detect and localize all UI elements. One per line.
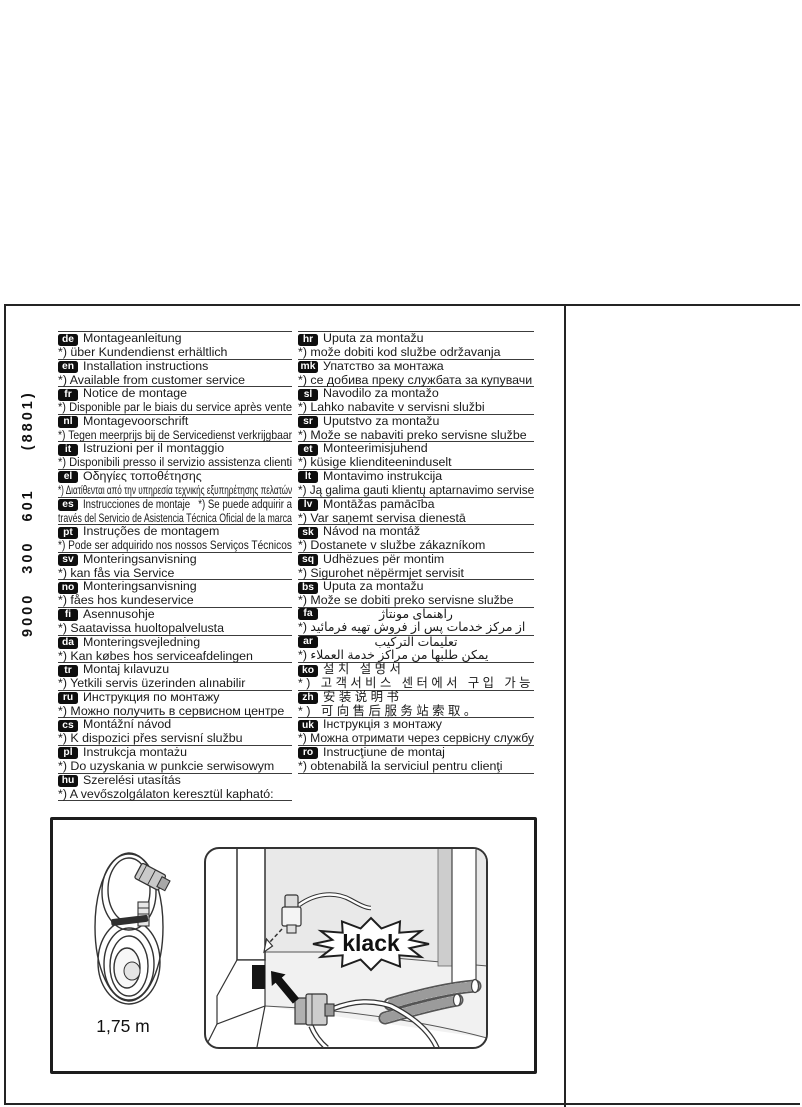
language-row-en: enInstallation instructions*) Available … <box>58 359 292 387</box>
language-title: راهنمای مونتاژ <box>298 608 534 621</box>
language-row-bs: bsUputa za montažu*) Može se dobiti prek… <box>298 579 534 607</box>
language-row-uk: ukІнструкція з монтажу*) Можна отримати … <box>298 717 534 745</box>
language-title: Navodilo za montažo <box>323 387 439 400</box>
language-row-lt: ltMontavimo instrukcija*) Ją galima gaut… <box>298 469 534 497</box>
language-note: *) Do uzyskania w punkcie serwisowym <box>58 760 274 773</box>
language-title: Інструкція з монтажу <box>323 718 442 731</box>
language-note: *) Можно получить в сервисном центре <box>58 705 284 718</box>
language-title: Инструкция по монтажу <box>83 691 220 704</box>
language-row-pl: plInstrukcja montażu*) Do uzyskania w pu… <box>58 745 292 773</box>
language-note: *) Yetkili servis üzerinden alınabilir <box>58 677 245 690</box>
language-code-badge-sl: sl <box>298 389 318 401</box>
language-title: تعليمات التركيب <box>298 636 534 649</box>
language-code-badge-sv: sv <box>58 554 78 566</box>
language-title: Uputa za montažu <box>323 332 424 345</box>
language-title: Instrucţiune de montaj <box>323 746 445 759</box>
power-socket <box>252 965 265 989</box>
klack-label: klack <box>342 930 400 956</box>
language-code-badge-sr: sr <box>298 416 318 428</box>
language-note: *) Disponibili presso il servizio assist… <box>58 456 292 469</box>
language-row-nl: nlMontagevoorschrift*) Tegen meerprijs b… <box>58 414 292 442</box>
cable-length-label: 1,75 m <box>96 1016 150 1036</box>
language-code-badge-mk: mk <box>298 361 318 373</box>
language-note: *) Sigurohet nëpërmjet servisit <box>298 567 464 580</box>
language-code-badge-ru: ru <box>58 692 78 704</box>
language-row-et: etMonteerimisjuhend*) küsige klienditeen… <box>298 441 534 469</box>
language-row-mk: mkУпатство за монтажа*) се добива преку … <box>298 359 534 387</box>
language-note: *) يمكن طلبها من مراكز خدمة العملاء <box>298 649 488 662</box>
language-code-badge-hr: hr <box>298 334 318 346</box>
language-note: *) kan fås via Service <box>58 567 174 580</box>
language-row-fa: faراهنمای مونتاژ*) از مرکز خدمات پس از ف… <box>298 607 534 635</box>
language-row-el: elΟδηγίες τοποθέτησης*) Διατίθενται από … <box>58 469 292 497</box>
language-row-sk: skNávod na montáž*) Dostanete v službe z… <box>298 524 534 552</box>
language-code-badge-bs: bs <box>298 582 318 594</box>
document-number-vertical: 9000 300 601 (8801) <box>20 335 37 637</box>
language-code-badge-es: es <box>58 499 78 511</box>
language-code-badge-da: da <box>58 637 78 649</box>
language-code-badge-no: no <box>58 582 78 594</box>
language-list-left: deMontageanleitung*) über Kundendienst e… <box>58 331 292 801</box>
language-code-badge-nl: nl <box>58 416 78 428</box>
right-frame-strip <box>452 848 476 983</box>
language-row-sv: svMonteringsanvisning*) kan fås via Serv… <box>58 552 292 580</box>
language-row-it: itIstruzioni per il montaggio*) Disponib… <box>58 441 292 469</box>
language-title: Monteringsanvisning <box>83 580 197 593</box>
language-note: *) obtenabilă la serviciul pentru clienţ… <box>298 760 503 773</box>
language-note: *) Ją galima gauti klientų aptarnavimo s… <box>298 484 534 497</box>
language-code-badge-ro: ro <box>298 747 318 759</box>
right-frame-strip-dark <box>438 848 452 966</box>
language-note: *) Može se nabaviti preko servisne služb… <box>298 429 527 442</box>
language-title: Montageanleitung <box>83 332 182 345</box>
language-row-hu: huSzerelési utasítás*) A vevőszolgálaton… <box>58 773 292 801</box>
language-row-hr: hrUputa za montažu*) može dobiti kod slu… <box>298 331 534 359</box>
power-cable-coil-icon <box>95 853 171 1004</box>
language-note: *) Kan købes hos serviceafdelingen <box>58 650 253 663</box>
language-note: *) K dispozici přes servisní službu <box>58 732 243 745</box>
installation-figure: 1,75 m <box>50 817 537 1074</box>
language-title: Instrucciones de montaje *) Se puede adq… <box>83 498 292 511</box>
appliance-rear-panel: klack <box>205 846 487 1048</box>
language-title: Montážní návod <box>83 718 171 731</box>
page-divider-line <box>564 304 566 1107</box>
language-row-ko: ko설치 설명서*) 고객서비스 센터에서 구입 가능 <box>298 662 534 690</box>
language-code-badge-pt: pt <box>58 527 78 539</box>
language-note: *) može dobiti kod službe održavanja <box>298 346 501 359</box>
language-note: *) Dostanete v službe zákazníkom <box>298 539 485 552</box>
language-note: *) се добива преку службата за купувачи <box>298 374 532 387</box>
language-code-badge-lt: lt <box>298 471 318 483</box>
language-note: *) 可向售后服务站索取。 <box>298 705 480 718</box>
language-note: *) Можна отримати через сервісну службу <box>298 732 534 745</box>
language-code-badge-uk: uk <box>298 720 318 732</box>
language-title: Instrukcja montażu <box>83 746 187 759</box>
language-code-badge-sq: sq <box>298 554 318 566</box>
language-list-right: hrUputa za montažu*) može dobiti kod slu… <box>298 331 534 774</box>
language-code-badge-sk: sk <box>298 527 318 539</box>
language-row-no: noMonteringsanvisning*) fåes hos kundese… <box>58 579 292 607</box>
language-row-tr: trMontaj kılavuzu*) Yetkili servis üzeri… <box>58 662 292 690</box>
language-title: Montāžas pamācība <box>323 498 435 511</box>
language-note: *) Saatavissa huoltopalvelusta <box>58 622 224 635</box>
language-note: *) 고객서비스 센터에서 구입 가능 <box>298 677 534 690</box>
language-row-ar: arتعليمات التركيب*) يمكن طلبها من مراكز … <box>298 635 534 663</box>
language-code-badge-it: it <box>58 444 78 456</box>
language-title: Installation instructions <box>83 360 208 373</box>
language-row-ro: roInstrucţiune de montaj*) obtenabilă la… <box>298 745 534 773</box>
language-row-lv: lvMontāžas pamācība*) Var saņemt servisa… <box>298 497 534 525</box>
language-row-ru: ruИнструкция по монтажу*) Можно получить… <box>58 690 292 718</box>
installation-figure-drawing: 1,75 m <box>53 820 534 1071</box>
language-row-zh: zh安装说明书*) 可向售后服务站索取。 <box>298 690 534 718</box>
language-title: Istruzioni per il montaggio <box>83 442 224 455</box>
language-title: Montavimo instrukcija <box>323 470 442 483</box>
language-code-badge-pl: pl <box>58 747 78 759</box>
language-note: *) Available from customer service <box>58 374 245 387</box>
language-note: *) Disponible par le biais du service ap… <box>58 401 292 414</box>
language-code-badge-cs: cs <box>58 720 78 732</box>
language-note: *) Lahko nabavite v servisni službi <box>298 401 485 414</box>
language-note: *) Διατίθενται από την υπηρεσία τεχνικής… <box>58 484 292 497</box>
language-code-badge-fr: fr <box>58 389 78 401</box>
language-code-badge-de: de <box>58 334 78 346</box>
language-title: Instruções de montagem <box>83 525 219 538</box>
language-title: Montagevoorschrift <box>83 415 188 428</box>
language-code-badge-ko: ko <box>298 665 318 677</box>
language-note: *) A vevőszolgálaton keresztül kapható: <box>58 788 274 801</box>
language-code-badge-en: en <box>58 361 78 373</box>
language-note: *) از مرکز خدمات پس از فروش تهیه فرمائید <box>298 621 525 634</box>
language-row-sq: sqUdhëzues për montim*) Sigurohet nëpërm… <box>298 552 534 580</box>
language-code-badge-zh: zh <box>298 692 318 704</box>
language-note: *) über Kundendienst erhältlich <box>58 346 227 359</box>
language-note: *) Može se dobiti preko servisne službe <box>298 594 514 607</box>
language-title: Οδηγίες τοποθέτησης <box>83 470 202 483</box>
language-title: Упатство за монтажа <box>323 360 444 373</box>
language-title: Udhëzues për montim <box>323 553 444 566</box>
language-code-badge-lv: lv <box>298 499 318 511</box>
language-title: Notice de montage <box>83 387 187 400</box>
language-code-badge-hu: hu <box>58 775 78 787</box>
language-title: 설치 설명서 <box>323 663 404 676</box>
language-note: *) küsige klienditeeninduselt <box>298 456 452 469</box>
language-row-de: deMontageanleitung*) über Kundendienst e… <box>58 331 292 359</box>
language-title: Asennusohje <box>83 608 155 621</box>
language-note: *) fåes hos kundeservice <box>58 594 194 607</box>
language-title: 安装说明书 <box>323 691 402 704</box>
language-note: *) Var saņemt servisa dienestā <box>298 512 466 525</box>
language-title: Monteerimisjuhend <box>323 442 428 455</box>
language-note: *) Tegen meerprijs bij de Servicedienst … <box>58 429 292 442</box>
language-row-fr: frNotice de montage*) Disponible par le … <box>58 386 292 414</box>
language-code-badge-tr: tr <box>58 665 78 677</box>
language-code-badge-fi: fi <box>58 609 78 621</box>
language-row-fi: fiAsennusohje*) Saatavissa huoltopalvelu… <box>58 607 292 635</box>
language-title: Uputstvo za montažu <box>323 415 439 428</box>
language-note: través del Servicio de Asistencia Técnic… <box>58 512 292 525</box>
language-row-da: daMonteringsvejledning*) Kan købes hos s… <box>58 635 292 663</box>
language-code-badge-et: et <box>298 444 318 456</box>
left-side-frame <box>237 846 265 960</box>
language-title: Szerelési utasítás <box>83 774 181 787</box>
language-code-badge-fa: fa <box>298 608 318 620</box>
language-note: *) Pode ser adquirido nos nossos Serviço… <box>58 539 292 552</box>
language-code-badge-el: el <box>58 471 78 483</box>
language-row-pt: ptInstruções de montagem*) Pode ser adqu… <box>58 524 292 552</box>
language-title: Návod na montáž <box>323 525 420 538</box>
language-row-sl: slNavodilo za montažo*) Lahko nabavite v… <box>298 386 534 414</box>
language-title: Montaj kılavuzu <box>83 663 169 676</box>
language-title: Uputa za montažu <box>323 580 424 593</box>
language-row-es: esInstrucciones de montaje *) Se puede a… <box>58 497 292 525</box>
language-row-cs: csMontážní návod*) K dispozici přes serv… <box>58 717 292 745</box>
language-row-sr: srUputstvo za montažu*) Može se nabaviti… <box>298 414 534 442</box>
language-title: Monteringsanvisning <box>83 553 197 566</box>
language-code-badge-ar: ar <box>298 636 318 648</box>
language-title: Monteringsvejledning <box>83 636 200 649</box>
